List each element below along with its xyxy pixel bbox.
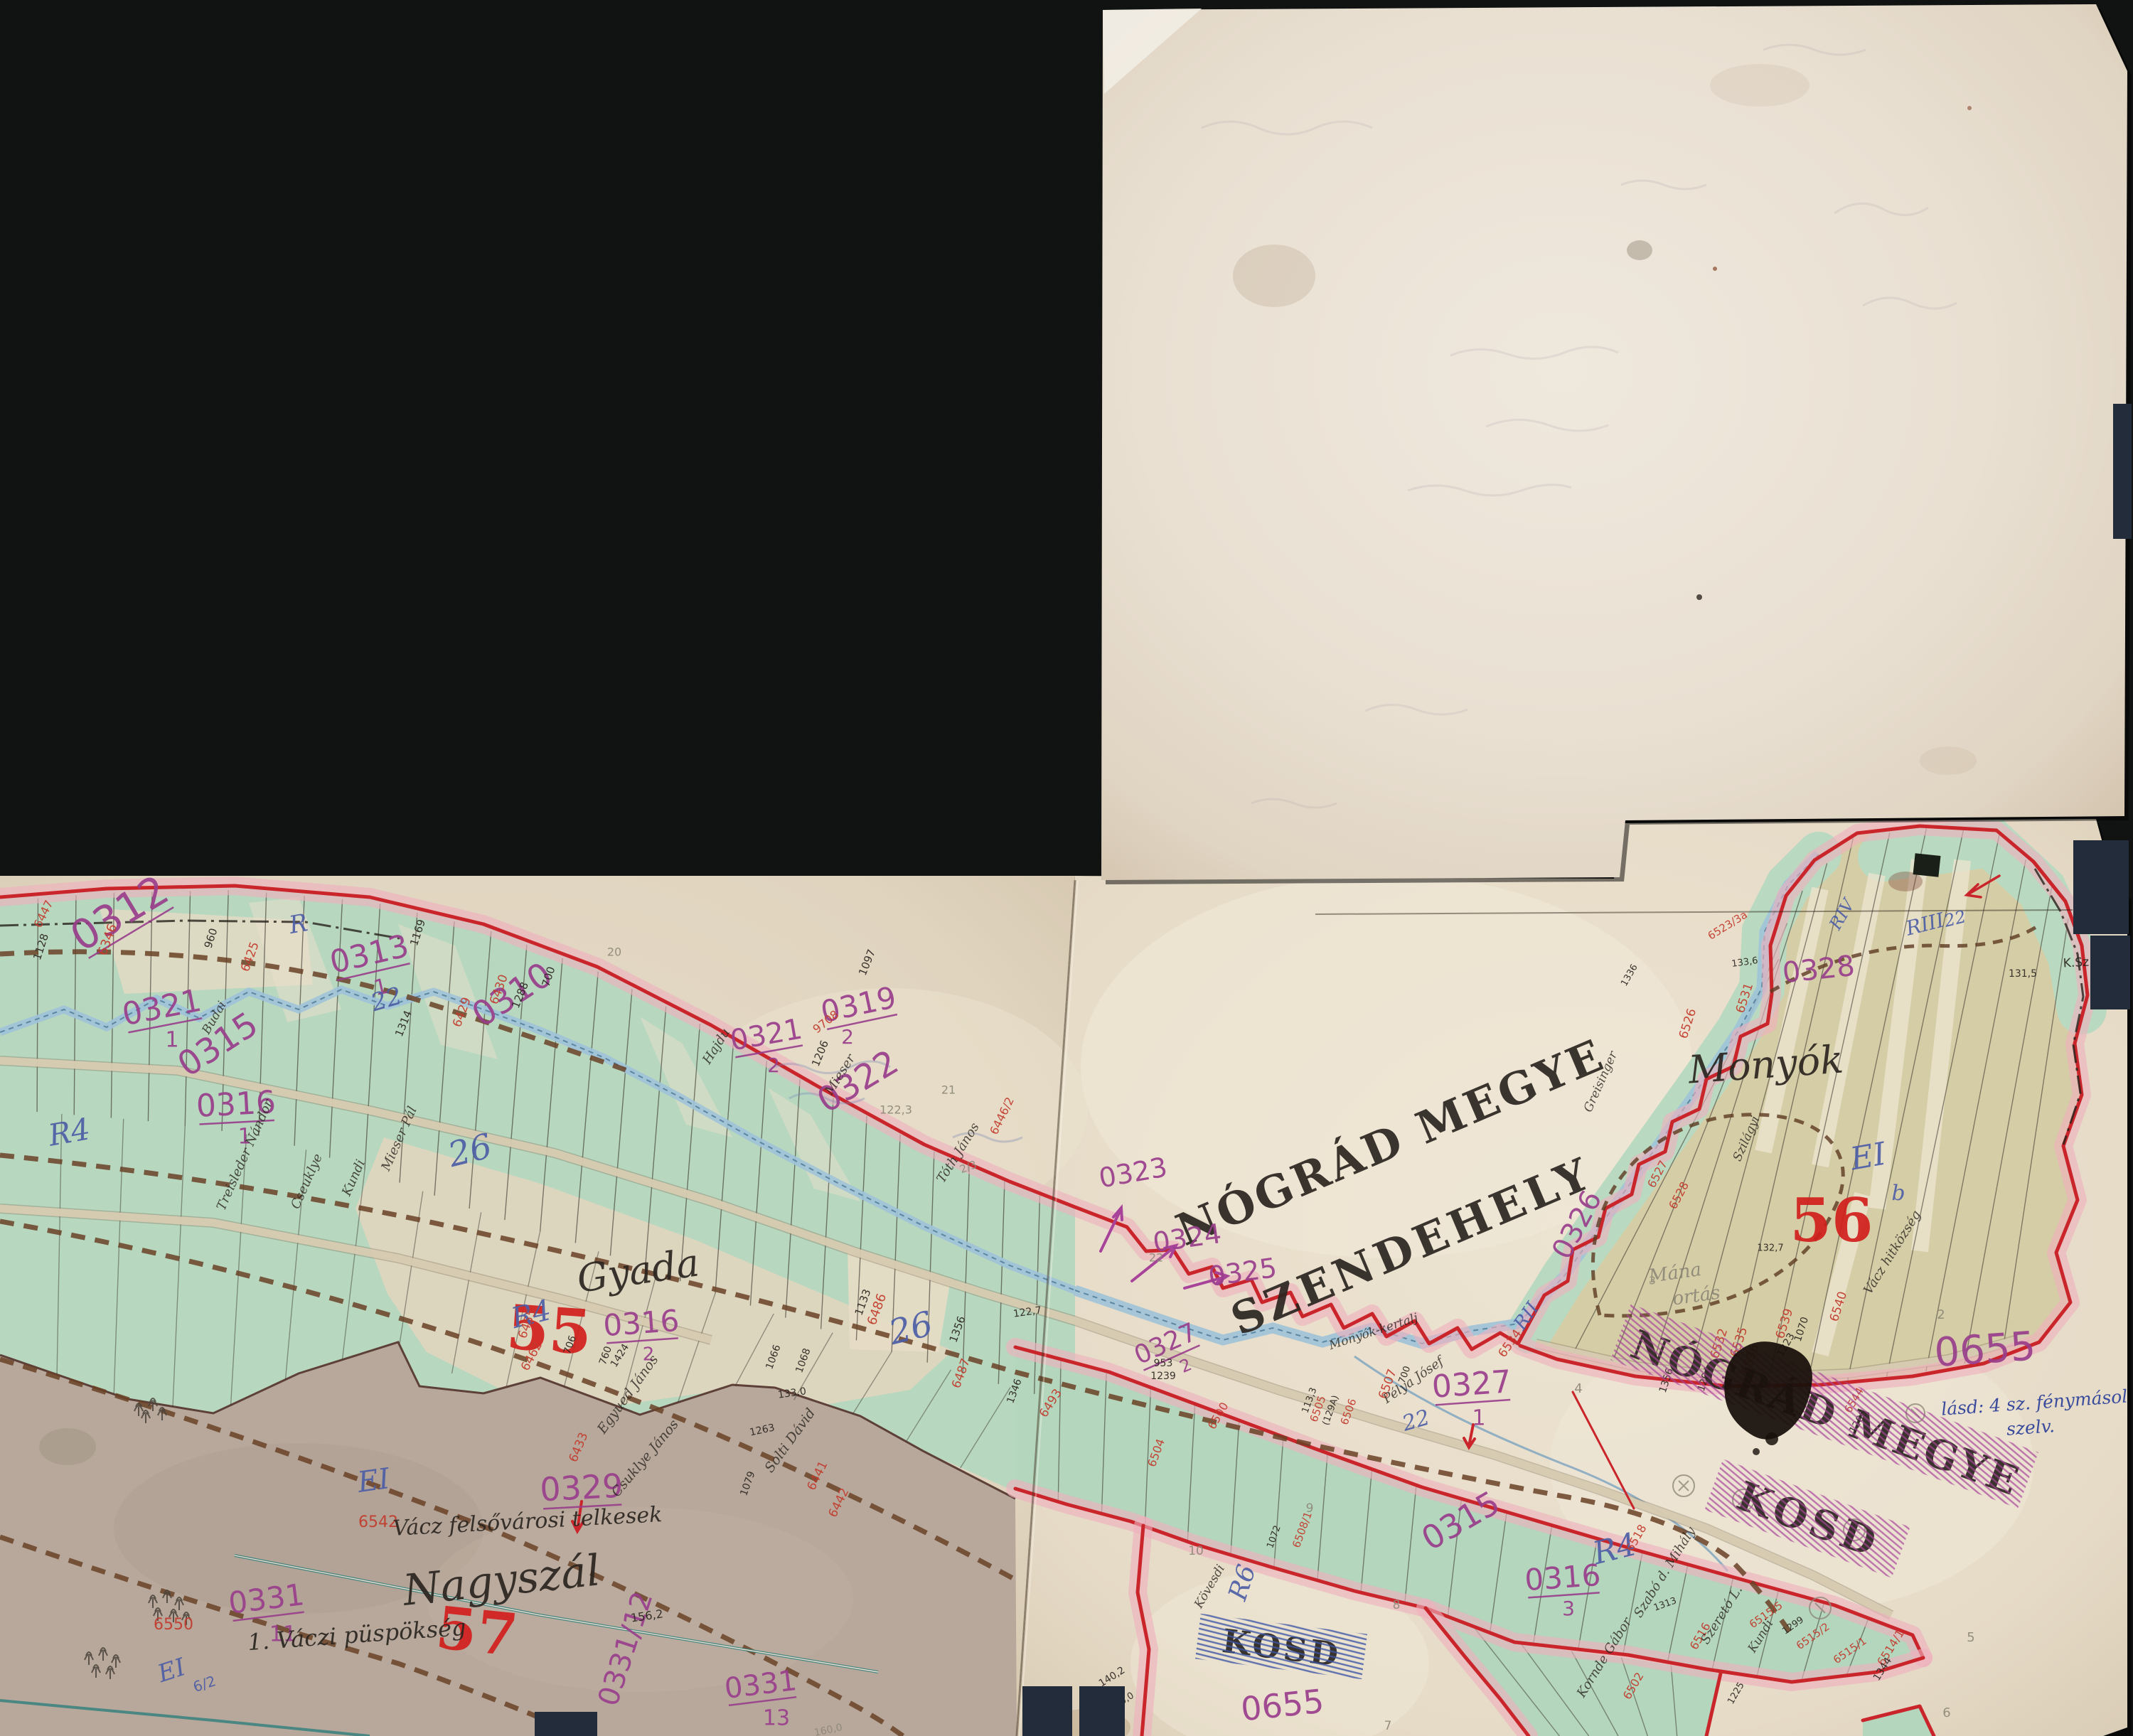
tape-fragment: [2073, 840, 2129, 934]
verso-sheet: [1101, 4, 2132, 884]
parcel-number-text: 1239: [1150, 1371, 1176, 1382]
survey-denominator-text: 13: [763, 1706, 790, 1731]
survey-number: 0655: [1932, 1323, 2037, 1376]
pencil-note-text: 5: [1967, 1630, 1974, 1645]
parcel-number: 1239: [1150, 1371, 1176, 1382]
pencil-note-text: 21: [941, 1083, 956, 1097]
survey-number-text: 0655: [1932, 1323, 2037, 1376]
survey-denominator: 1: [1472, 1406, 1485, 1431]
tape-fragment: [2090, 936, 2130, 1009]
blue-annotation-text: R4: [45, 1111, 92, 1153]
sheet-number-text: 56: [1790, 1185, 1873, 1255]
elevation: 131,5: [2009, 968, 2037, 980]
parcel-number-text: 6550: [154, 1616, 193, 1634]
blue-annotation-text: EI: [1847, 1135, 1890, 1177]
pencil-note: 21: [941, 1083, 956, 1097]
pencil-note-text: 6: [1942, 1705, 1950, 1720]
blue-annotation-text: b: [1891, 1181, 1905, 1206]
survey-denominator-text: 1: [1472, 1406, 1485, 1431]
elevation-text: 131,5: [2009, 968, 2037, 980]
scanned-cadastral-map: 680,21260015608,80Agárd24230312031310321…: [0, 0, 2133, 1736]
pencil-note-text: 3: [1649, 1275, 1656, 1287]
blue-annotation: R4: [45, 1111, 92, 1153]
survey-denominator-text: 2: [841, 1025, 854, 1049]
survey-denominator-text: 2: [767, 1054, 780, 1077]
pencil-note: 10: [1188, 1544, 1204, 1558]
survey-denominator-text: 3: [1562, 1597, 1575, 1620]
map-scan-canvas: 680,21260015608,80Agárd24230312031310321…: [0, 0, 2133, 1736]
blue-annotation: EI: [1847, 1135, 1890, 1177]
blue-annotation: EI: [355, 1462, 392, 1499]
parcel-number: 953: [1154, 1358, 1173, 1369]
survey-number-text: 0327: [1431, 1363, 1512, 1405]
survey-number-text: 0316: [602, 1303, 680, 1343]
survey-number: 0316: [602, 1303, 680, 1344]
pencil-note-text: 22: [1149, 1251, 1163, 1265]
survey-denominator: 13: [763, 1706, 790, 1731]
pencil-note: 3: [1649, 1275, 1656, 1287]
ink-note-text: szelv.: [2006, 1415, 2056, 1440]
pencil-note: 20: [607, 945, 621, 959]
tape-fragment: [535, 1712, 597, 1736]
blue-annotation-text: EI: [355, 1462, 392, 1499]
elevation: 132,7: [1757, 1243, 1783, 1254]
pencil-note: 5: [1967, 1630, 1974, 1645]
survey-denominator: 2: [767, 1054, 780, 1077]
survey-denominator: 2: [841, 1025, 854, 1049]
ink-note: szelv.: [2006, 1415, 2056, 1440]
tape-fragment: [1079, 1686, 1125, 1736]
blue-annotation: b: [1891, 1181, 1905, 1206]
pencil-note: 22: [1149, 1251, 1163, 1265]
pencil-note-text: 7: [1384, 1719, 1392, 1733]
survey-number-text: 0316: [1524, 1558, 1602, 1597]
elevation-text: 132,7: [1757, 1243, 1783, 1254]
pencil-note-text: 20: [607, 945, 621, 959]
survey-number: 0327: [1431, 1363, 1512, 1405]
sheet-gap: [1913, 853, 1941, 877]
pencil-note: 7: [1384, 1719, 1392, 1733]
pencil-note-text: 122,3: [880, 1103, 912, 1117]
pencil-note: 122,3: [880, 1103, 912, 1117]
pencil-note-text: 4: [1574, 1381, 1582, 1396]
parcel-number: 6550: [154, 1616, 193, 1634]
pencil-note-text: 10: [1188, 1544, 1204, 1558]
pencil-note: 2: [1937, 1307, 1945, 1322]
sheet-number: 56: [1790, 1185, 1873, 1255]
pencil-note: 8: [1393, 1598, 1401, 1612]
tape-fragment: [2113, 404, 2132, 539]
pencil-note-text: 8: [1393, 1598, 1401, 1612]
pencil-note: 6: [1942, 1705, 1950, 1720]
survey-denominator: 3: [1562, 1597, 1575, 1620]
tape-fragment: [1022, 1686, 1072, 1736]
pencil-note: 4: [1574, 1381, 1582, 1396]
survey-number: 0316: [1524, 1558, 1602, 1598]
pencil-note-text: 2: [1937, 1307, 1945, 1322]
parcel-number-text: 953: [1154, 1358, 1173, 1369]
